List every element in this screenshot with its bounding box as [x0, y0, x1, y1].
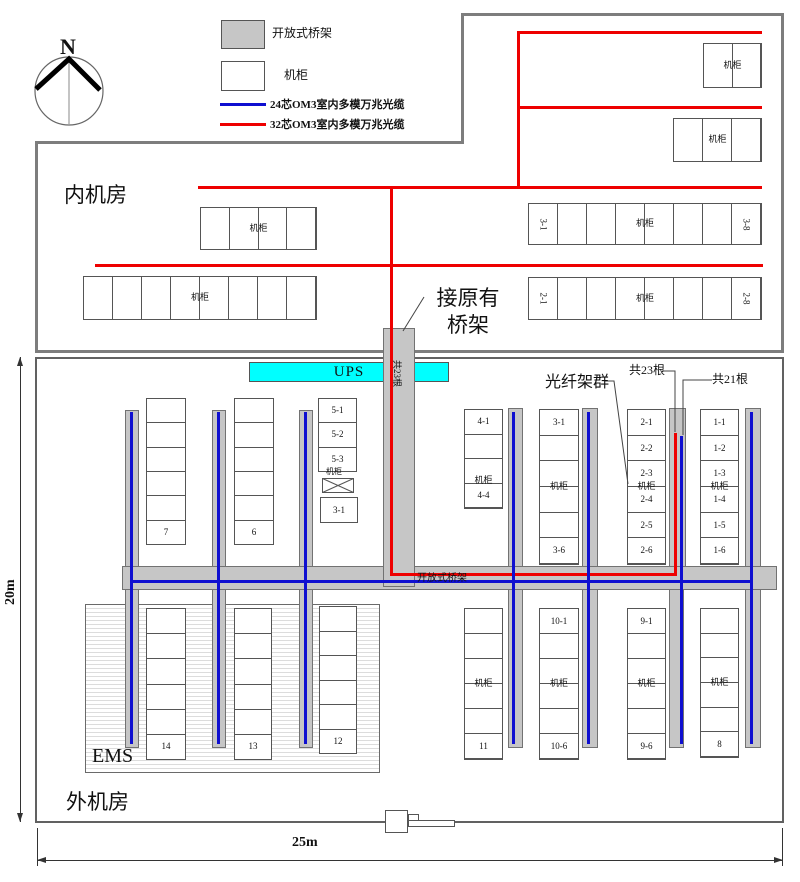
- tray-lower-right-4: [745, 589, 761, 748]
- cabinet-cell-label: 3-8: [742, 218, 751, 230]
- cabinet-cell-label: 2-2: [641, 444, 653, 453]
- cabinet-cell: 3-1: [321, 498, 357, 522]
- cabinet-group-col-11: 11机柜: [464, 608, 503, 760]
- cabinet-cell: [147, 710, 185, 735]
- inner-room-label: 内机房: [64, 183, 127, 207]
- legend-red-line-swatch: [220, 123, 266, 126]
- cabinet-cell-label: 3-1: [539, 218, 548, 230]
- legend-blue-cable-label: 24芯OM3室内多模万兆光缆: [270, 99, 404, 112]
- cabinet-cell: [258, 277, 287, 319]
- cabinet-cell-label: 5-2: [332, 430, 344, 439]
- cabinet-cell: 5-1: [319, 399, 356, 423]
- cabinet-cell-label: 10-1: [551, 617, 568, 626]
- cabinet-cell: 3-1: [540, 410, 578, 436]
- cabinet-cell: [701, 683, 738, 708]
- blue-cable-v5: [587, 412, 590, 744]
- tray-upper-right-4: [745, 408, 761, 567]
- cabinet-cell: 3-8: [732, 204, 761, 244]
- cabinet-cell: [320, 607, 356, 632]
- cabinet-cell: [703, 119, 732, 161]
- mini-cabinet-label: 机柜: [326, 467, 342, 476]
- cabinet-cell: [147, 399, 185, 423]
- connect-tray-label: 接原有 桥架: [428, 285, 508, 340]
- central-bridge-count-label: 共23根: [392, 360, 402, 387]
- cabinet-cell-label: 14: [162, 742, 171, 751]
- cabinet-cell: [235, 496, 273, 520]
- cabinet-cell: [147, 685, 185, 710]
- cabinet-group-col-13: 13: [234, 608, 272, 760]
- cabinet-cell: 2-2: [628, 436, 665, 462]
- cabinet-cell: 10-6: [540, 734, 578, 759]
- count-23-label: 共23根: [629, 364, 665, 378]
- cabinet-cell: [540, 709, 578, 734]
- cabinet-cell: 2-6: [628, 538, 665, 564]
- cabinet-cell: 1-6: [701, 538, 738, 564]
- cabinet-cell: [229, 277, 258, 319]
- vertical-dimension-label: 20m: [3, 579, 19, 605]
- cabinet-cell: [732, 119, 761, 161]
- cabinet-cell: 2-3: [628, 461, 665, 487]
- cabinet-cell: [540, 634, 578, 659]
- cabinet-cell: [587, 278, 616, 319]
- blue-cable-v2: [217, 412, 220, 744]
- cabinet-cell-label: 2-1: [641, 418, 653, 427]
- cabinet-cell: [147, 659, 185, 684]
- cabinet-cell-label: 5-1: [332, 406, 344, 415]
- cabinet-cell: [287, 208, 316, 249]
- cabinet-cell: [147, 472, 185, 496]
- tray-upper-right-3: [669, 408, 686, 567]
- cabinet-group-col-9: 9-19-6机柜: [627, 608, 666, 760]
- cabinet-cell-label: 3-6: [553, 546, 565, 555]
- legend-open-tray-label: 开放式桥架: [272, 27, 332, 41]
- inner-room-wall-notch: [461, 13, 464, 144]
- cabinet-cell: [540, 461, 578, 487]
- red-cable-main-h1: [198, 186, 762, 189]
- ups-label: UPS: [334, 364, 365, 381]
- legend-cabinet-label: 机柜: [284, 69, 308, 83]
- cabinet-cell: [142, 277, 171, 319]
- floorplan-diagram: 开放式桥架 机柜 24芯OM3室内多模万兆光缆 32芯OM3室内多模万兆光缆 N…: [0, 0, 800, 882]
- cabinet-group-col-3: 3-13-6机柜: [539, 409, 579, 565]
- cabinet-cell: [701, 658, 738, 683]
- cabinet-cell: [235, 634, 271, 659]
- cabinet-cell: [465, 659, 502, 684]
- cabinet-group-col-10: 10-110-6机柜: [539, 608, 579, 760]
- cabinet-cell: 14: [147, 735, 185, 759]
- count-21-label: 共21根: [712, 373, 748, 387]
- cabinet-cell: [465, 709, 502, 734]
- tray-upper-right-1: [508, 408, 523, 567]
- cabinet-cell: 1-5: [701, 513, 738, 539]
- cabinet-cell: 9-1: [628, 609, 665, 634]
- cabinet-cell: [628, 709, 665, 734]
- cabinet-cell: 2-5: [628, 513, 665, 539]
- cabinet-cell: [235, 423, 273, 447]
- cabinet-cell: [259, 208, 288, 249]
- cabinet-cell: 8: [701, 732, 738, 757]
- blue-cable-v1: [130, 412, 133, 744]
- connect-tray-line2: 桥架: [447, 313, 489, 337]
- legend-red-cable-label: 32芯OM3室内多模万兆光缆: [270, 119, 404, 132]
- cabinet-cell: [701, 634, 738, 659]
- vertical-dimension-line: [20, 357, 21, 822]
- cabinet-cell: [645, 278, 674, 319]
- cabinet-cell: [587, 204, 616, 244]
- cabinet-cell-label: 2-3: [641, 469, 653, 478]
- cabinet-group-col-8: 8机柜: [700, 608, 739, 758]
- inner-room-wall-top-left: [35, 141, 464, 144]
- cabinet-cell: [465, 609, 502, 634]
- cabinet-group-col-4: 4-14-4机柜: [464, 409, 503, 509]
- cabinet-cell-label: 9-1: [641, 617, 653, 626]
- cabinet-cell: [704, 44, 733, 87]
- cabinet-group-inner-row-2: 2-12-8机柜: [528, 277, 762, 320]
- connect-tray-leader: [403, 297, 424, 331]
- horizontal-dimension-label: 25m: [292, 835, 318, 851]
- cabinet-cell: 12: [320, 730, 356, 754]
- red-cable-main-h2: [95, 264, 763, 267]
- cabinet-group-col-7: 7: [146, 398, 186, 545]
- cabinet-cell: [235, 710, 271, 735]
- cabinet-cell-label: 1-3: [714, 469, 726, 478]
- cabinet-group-col-1: 1-11-21-31-41-51-6机柜: [700, 409, 739, 565]
- door-symbol-bar: [408, 820, 455, 827]
- cabinet-cell: [147, 448, 185, 472]
- cabinet-cell: [703, 204, 732, 244]
- cabinet-cell: [674, 278, 703, 319]
- cabinet-cell: [147, 423, 185, 447]
- tray-band-label: 开放式桥架: [417, 573, 467, 585]
- inner-room-wall-left: [35, 141, 38, 353]
- cabinet-cell: [558, 204, 587, 244]
- cabinet-cell: [558, 278, 587, 319]
- cabinet-cell: [540, 513, 578, 539]
- tray-lower-right-2: [582, 589, 598, 748]
- cabinet-cell: [171, 277, 200, 319]
- cabinet-cell: [113, 277, 142, 319]
- cabinet-cell: 2-1: [529, 278, 558, 319]
- cabinet-cell-label: 1-2: [714, 444, 726, 453]
- cabinet-cell: [674, 119, 703, 161]
- red-cable-top-h2: [517, 106, 762, 109]
- legend-open-tray-swatch: [221, 20, 265, 49]
- cabinet-group-inner-left-4: 机柜: [200, 207, 317, 250]
- cabinet-cell: [703, 278, 732, 319]
- cabinet-group-col-14: 14: [146, 608, 186, 760]
- compass-north-label: N: [60, 34, 76, 59]
- outer-room-label: 外机房: [66, 790, 129, 814]
- cabinet-cell-label: 7: [164, 528, 169, 537]
- cabinet-cell: [147, 634, 185, 659]
- cabinet-cell: [465, 684, 502, 709]
- cabinet-cell: [84, 277, 113, 319]
- cabinet-cell: [200, 277, 229, 319]
- cabinet-cell: [147, 609, 185, 634]
- cabinet-cell: [235, 659, 271, 684]
- cabinet-cell: 1-4: [701, 487, 738, 513]
- cabinet-cell: [628, 634, 665, 659]
- cabinet-cell-label: 1-5: [714, 521, 726, 530]
- cabinet-cell: 6: [235, 521, 273, 544]
- cabinet-group-col-6: 6: [234, 398, 274, 545]
- cabinet-cell: [645, 204, 674, 244]
- dimension-extension-left: [37, 828, 38, 866]
- cabinet-cell: [540, 684, 578, 709]
- blue-cable-v6: [680, 436, 683, 744]
- cabinet-cell: [628, 684, 665, 709]
- cabinet-cell-label: 2-6: [641, 546, 653, 555]
- blue-cable-v3: [304, 412, 307, 744]
- cabinet-cell: [320, 681, 356, 706]
- cabinet-cell: 11: [465, 734, 502, 759]
- cabinet-cell-label: 11: [479, 742, 488, 751]
- cabinet-cell: [674, 204, 703, 244]
- cabinet-cell: [235, 685, 271, 710]
- cabinet-cell: [230, 208, 259, 249]
- cabinet-cell-label: 10-6: [551, 742, 568, 751]
- legend-cabinet-swatch: [221, 61, 265, 91]
- cabinet-group-col-2: 2-12-22-32-42-52-6机柜: [627, 409, 666, 565]
- cabinet-cell-label: 4-4: [478, 491, 490, 500]
- cabinet-cell: [320, 632, 356, 657]
- cabinet-cell: 1-3: [701, 461, 738, 487]
- ems-label: EMS: [92, 745, 133, 768]
- cabinet-cell: 2-1: [628, 410, 665, 436]
- connect-tray-line1: 接原有: [437, 286, 500, 310]
- cabinet-cell-label: 12: [334, 737, 343, 746]
- cabinet-cell: [235, 448, 273, 472]
- tray-upper-right-2: [582, 408, 598, 567]
- cabinet-cell: [320, 705, 356, 730]
- cabinet-cell: [540, 659, 578, 684]
- cabinet-cell-label: 3-1: [553, 418, 565, 427]
- cabinet-cell: 5-2: [319, 423, 356, 447]
- cabinet-cell-label: 4-1: [478, 417, 490, 426]
- cabinet-cell-label: 6: [252, 528, 257, 537]
- cabinet-cell: [616, 204, 645, 244]
- cabinet-group-col-12: 12: [319, 606, 357, 754]
- cabinet-cell: [701, 708, 738, 733]
- cabinet-cell-label: 8: [717, 740, 722, 749]
- cabinet-cell: 1-1: [701, 410, 738, 436]
- cabinet-group-top-right-3: 机柜: [673, 118, 762, 162]
- cabinet-cell: 3-6: [540, 538, 578, 564]
- red-cable-top-h1: [517, 31, 762, 34]
- cabinet-cell: [733, 44, 762, 87]
- cabinet-cell: [465, 435, 502, 460]
- cabinet-cell: [235, 399, 273, 423]
- cabinet-cell: 3-1: [529, 204, 558, 244]
- cabinet-cell: 1-2: [701, 436, 738, 462]
- cabinet-cell: 4-4: [465, 484, 502, 509]
- cabinet-cell: 13: [235, 735, 271, 759]
- cabinet-box-3-1: 3-1: [320, 497, 358, 523]
- cabinet-cell: [540, 487, 578, 513]
- cabinet-cell-label: 2-1: [539, 293, 548, 305]
- cabinet-cell-label: 5-3: [332, 455, 344, 464]
- cabinet-cell: [465, 634, 502, 659]
- cabinet-cell: [147, 496, 185, 520]
- ups-box: UPS: [249, 362, 449, 382]
- cabinet-cell-label: 1-1: [714, 418, 726, 427]
- cabinet-group-inner-left-8: 机柜: [83, 276, 317, 320]
- cabinet-group-top-right-2: 机柜: [703, 43, 762, 88]
- cabinet-cell-label: 1-6: [714, 546, 726, 555]
- cabinet-cell: [628, 659, 665, 684]
- cabinet-cell: [287, 277, 316, 319]
- cabinet-cell: [235, 609, 271, 634]
- cabinet-cell: 7: [147, 521, 185, 544]
- blue-cable-v4: [512, 412, 515, 744]
- cabinet-cell: [701, 609, 738, 634]
- horizontal-dimension-line: [37, 860, 783, 861]
- cabinet-cell-label: 3-1: [333, 506, 345, 515]
- red-cable-top-v: [517, 31, 520, 189]
- cabinet-cell-label: 13: [249, 742, 258, 751]
- cabinet-cell: [320, 656, 356, 681]
- cabinet-cell: 4-1: [465, 410, 502, 435]
- cabinet-cell: 9-6: [628, 734, 665, 759]
- cabinet-cell: [616, 278, 645, 319]
- cabinet-cell: [465, 459, 502, 484]
- compass-icon: [35, 57, 103, 125]
- cabinet-cell-label: 2-4: [641, 495, 653, 504]
- dimension-extension-right: [782, 828, 783, 866]
- cabinet-cell: 2-4: [628, 487, 665, 513]
- cabinet-cell: [540, 436, 578, 462]
- blue-cable-v7: [750, 412, 753, 744]
- inner-room-wall-top-right: [461, 13, 784, 16]
- cabinet-cell-label: 2-5: [641, 521, 653, 530]
- cabinet-cell-label: 2-8: [742, 293, 751, 305]
- legend-blue-line-swatch: [220, 103, 266, 106]
- inner-room-wall-right: [781, 13, 784, 353]
- cabinet-cell: [235, 472, 273, 496]
- cabinet-cell: [201, 208, 230, 249]
- cabinet-cell-label: 1-4: [714, 495, 726, 504]
- fiber-group-label: 光纤架群: [545, 374, 609, 392]
- door-symbol-box: [385, 810, 408, 833]
- tray-lower-right-1: [508, 589, 523, 748]
- cabinet-cell: 10-1: [540, 609, 578, 634]
- cabinet-group-col-5: 5-15-25-3: [318, 398, 357, 472]
- cabinet-group-inner-row-3: 3-13-8机柜: [528, 203, 762, 245]
- cabinet-cell-label: 9-6: [641, 742, 653, 751]
- cabinet-cell: 2-8: [732, 278, 761, 319]
- red-cable-riser-v: [674, 433, 677, 576]
